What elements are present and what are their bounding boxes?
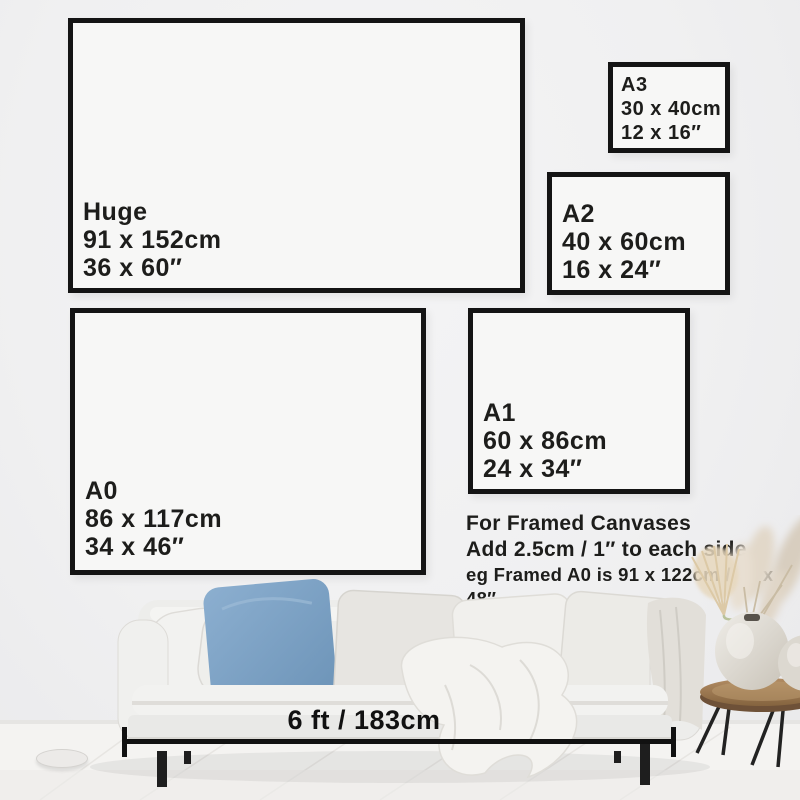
measurement-line (124, 739, 676, 744)
size-inches: 16 x 24″ (562, 256, 686, 284)
size-cm: 91 x 152cm (83, 226, 221, 254)
frame-huge: Huge 91 x 152cm 36 x 60″ (68, 18, 525, 293)
vase-main (715, 612, 789, 690)
vase-arrangement (688, 515, 800, 691)
size-cm: 40 x 60cm (562, 228, 686, 256)
floor-tray (36, 749, 88, 768)
size-inches: 24 x 34″ (483, 455, 607, 483)
size-name: A3 (621, 73, 721, 97)
size-cm: 60 x 86cm (483, 427, 607, 455)
frame-a2-label: A2 40 x 60cm 16 x 24″ (562, 200, 686, 284)
size-name: A2 (562, 200, 686, 228)
size-guide-image: Huge 91 x 152cm 36 x 60″ A3 30 x 40cm 12… (0, 0, 800, 800)
size-name: A1 (483, 399, 607, 427)
measurement-label: 6 ft / 183cm (124, 705, 604, 736)
frame-huge-label: Huge 91 x 152cm 36 x 60″ (83, 198, 221, 282)
measurement-cap-right (671, 727, 676, 757)
size-inches: 36 x 60″ (83, 254, 221, 282)
size-inches: 12 x 16″ (621, 121, 721, 145)
frame-a2: A2 40 x 60cm 16 x 24″ (547, 172, 730, 295)
size-name: A0 (85, 477, 222, 505)
frame-a3-label: A3 30 x 40cm 12 x 16″ (621, 73, 721, 145)
size-name: Huge (83, 198, 221, 226)
frame-a3: A3 30 x 40cm 12 x 16″ (608, 62, 730, 153)
frame-a1: A1 60 x 86cm 24 x 34″ (468, 308, 690, 494)
room-scene (0, 515, 800, 800)
frame-a1-label: A1 60 x 86cm 24 x 34″ (483, 399, 607, 483)
size-cm: 30 x 40cm (621, 97, 721, 121)
